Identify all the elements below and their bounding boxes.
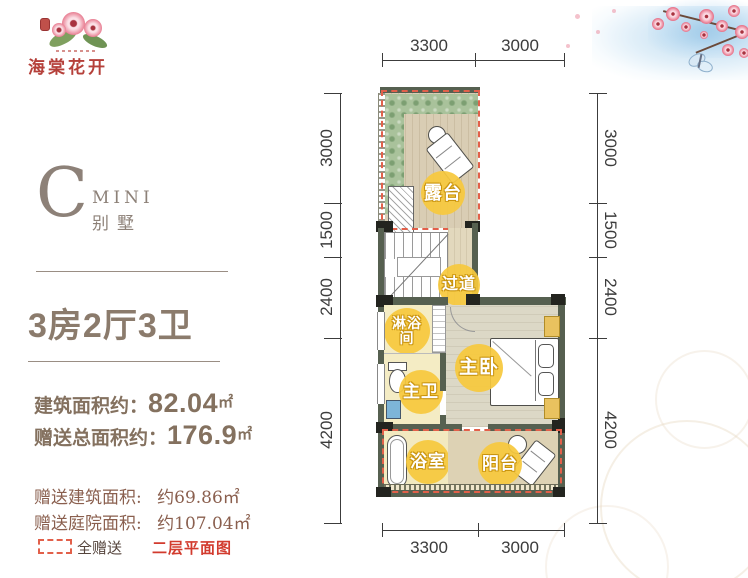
shower-label-text: 淋浴间 [391,316,423,345]
gift-courtyard-label: 赠送庭院面积: [34,514,142,534]
dim-tick [324,338,342,339]
nightstand [544,398,560,419]
blossom-flower [722,44,734,56]
dim-right-2400: 2400 [600,267,620,327]
petal-dot [612,9,616,13]
strip-gift-outline [382,429,562,493]
gift-building-value: 约69.86㎡ [157,488,240,508]
window [377,364,385,404]
blossom-flower [728,5,740,17]
dim-left-4200: 4200 [317,400,337,460]
dim-tick [382,523,383,537]
corridor-label-text: 过道 [442,277,476,294]
gift-total-area-line: 赠送总面积约：176.9㎡ [34,420,252,451]
dim-right-3000: 3000 [600,118,620,178]
legend-gift-swatch [38,539,72,554]
dim-right-1500: 1500 [600,200,620,260]
watermark-circle [655,350,748,449]
dim-line-bottom [382,530,565,531]
master-bedroom-label-text: 主卧 [459,358,499,378]
dim-tick [589,338,607,339]
petal-dot [575,14,580,19]
petal-dot [596,30,600,34]
blossom-flower [681,22,691,32]
blossom-flower [666,7,680,21]
dim-tick [324,93,342,94]
gift-total-unit: ㎡ [237,426,252,443]
dim-top-3000: 3000 [490,36,550,56]
dim-left-2400: 2400 [317,267,337,327]
dim-tick [475,53,476,67]
sink-fixture [386,400,401,419]
unit-series: MINI [92,188,154,208]
dim-tick [564,53,565,67]
legend-plan-label: 二层平面图 [152,537,232,558]
dim-left-3000: 3000 [317,118,337,178]
building-area-line: 建筑面积约：82.04㎡ [34,388,233,419]
gift-total-value: 176.9 [167,420,237,450]
pillow [538,344,554,368]
blossom-flower [700,31,708,39]
brand-logo [40,6,120,56]
room-label-master-bath: 主卫 [399,370,443,414]
gift-total-label: 赠送总面积约： [34,428,167,449]
butterfly-icon [688,52,716,76]
room-label-master-bedroom: 主卧 [455,344,503,392]
dim-tick [589,93,607,94]
dim-tick [382,53,383,67]
layout-title: 3房2厅3卫 [28,298,193,347]
blossom-flower [716,20,728,32]
dim-line-left [340,93,341,523]
dim-line-right [597,93,598,523]
legend-gift-label: 全赠送 [77,537,122,558]
dim-tick [324,523,342,524]
column-block [376,487,391,497]
dim-bottom-3300: 3300 [399,538,459,558]
logo-tagline-dashes [56,50,96,52]
gift-building-label: 赠送建筑面积: [34,488,142,508]
building-area-label: 建筑面积约： [34,396,148,417]
divider [36,271,228,272]
brand-name: 海棠花开 [28,53,128,78]
dim-right-4200: 4200 [600,400,620,460]
divider [28,361,220,362]
gift-courtyard-line: 赠送庭院面积: 约107.04㎡ [34,509,251,534]
room-label-shower: 淋浴间 [384,308,430,354]
dim-tick [478,523,479,537]
floor-plan-poster: 海棠花开 C MINI 别墅 3房2厅3卫 建筑面积约：82.04㎡ 赠送总面积… [0,0,748,578]
dim-bottom-3000: 3000 [490,538,550,558]
logo-flower [84,19,102,37]
gift-courtyard-value: 约107.04㎡ [157,514,250,534]
dim-left-1500: 1500 [317,200,337,260]
dim-line-top [382,60,565,61]
blossom-flower [735,25,748,39]
petal-dot [566,44,570,48]
blossom-flower [699,9,714,24]
bed-headboard-line [535,340,536,401]
blossom-flower [652,18,664,30]
column-block [553,487,565,497]
logo-flower [52,23,66,37]
blossom-flower [739,48,748,58]
nightstand [544,316,560,337]
gift-building-line: 赠送建筑面积: 约69.86㎡ [34,483,240,508]
building-area-unit: ㎡ [218,394,233,411]
logo-lantern [40,18,50,31]
terrace-label-text: 露台 [424,184,462,203]
unit-letter: C [36,160,88,228]
window [377,312,385,350]
bath-divider [384,353,440,354]
shower-cabinet [432,305,446,353]
dim-tick [589,523,607,524]
dim-tick [564,523,565,537]
building-area-value: 82.04 [148,388,218,418]
unit-type: 别墅 [92,209,142,234]
stair-landing [397,257,441,277]
pillow [538,372,554,396]
dim-top-3300: 3300 [399,36,459,56]
master-bath-label-text: 主卫 [403,383,439,401]
room-label-terrace: 露台 [421,171,465,215]
